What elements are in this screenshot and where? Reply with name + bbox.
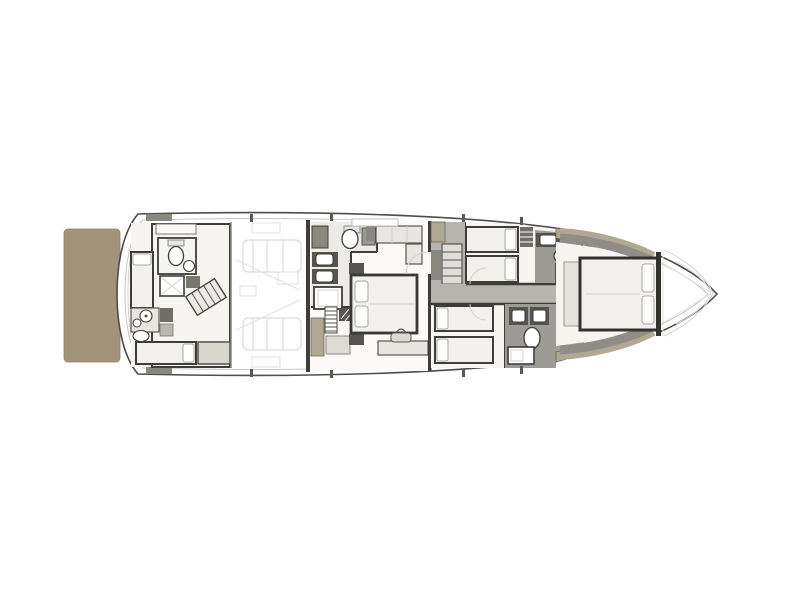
shelf (352, 219, 398, 226)
sink (540, 235, 556, 245)
crew-locker-aft (198, 342, 230, 364)
stern-cleat-top (146, 214, 172, 221)
bench (378, 341, 428, 355)
crew-step (160, 324, 173, 336)
stern-cleat-bottom (146, 367, 172, 374)
yacht-floor-plan (0, 0, 786, 590)
sink (184, 261, 195, 272)
bag (391, 333, 411, 342)
pillow (355, 281, 368, 302)
toilet (524, 328, 540, 349)
bow-bulkhead (656, 252, 661, 336)
stair-landing (431, 222, 445, 242)
pillow (505, 229, 516, 250)
pillow (642, 296, 654, 324)
pillow (437, 339, 448, 361)
master-aft-wall (428, 221, 432, 371)
dresser (326, 336, 350, 354)
crew-locker (156, 224, 196, 234)
pillow (642, 264, 654, 292)
pillow (355, 306, 368, 327)
pillow (133, 254, 151, 265)
foot-bench (564, 262, 580, 326)
sink (512, 310, 525, 322)
crew-cabinet-2 (160, 308, 173, 322)
bulkhead (306, 220, 310, 372)
floor-plan-drawing (0, 0, 786, 590)
nightstand (349, 263, 364, 274)
pillow (183, 344, 194, 362)
master-cabin (310, 219, 432, 371)
lobby-cabinet (431, 250, 441, 280)
crew-cabinet (186, 276, 200, 288)
door-gap (428, 252, 432, 274)
vip-cabin (556, 231, 661, 357)
toilet (342, 230, 358, 249)
pillow (505, 258, 516, 280)
burner-small (133, 319, 141, 327)
side-table (366, 226, 375, 241)
bath-cabinet (312, 226, 328, 248)
bathroom-lower-ensuite (505, 304, 556, 368)
cistern (168, 240, 184, 246)
pillow (437, 308, 448, 329)
sink (316, 254, 333, 265)
sink (533, 310, 546, 322)
toilet (169, 247, 184, 266)
sofa (376, 226, 422, 243)
galley-sink (133, 331, 149, 342)
wardrobe (311, 318, 324, 356)
crew-quarters (131, 223, 231, 367)
swim-platform (64, 229, 120, 362)
nightstand (349, 334, 364, 345)
wardrobe-hatched (520, 227, 533, 247)
sink (316, 271, 333, 282)
